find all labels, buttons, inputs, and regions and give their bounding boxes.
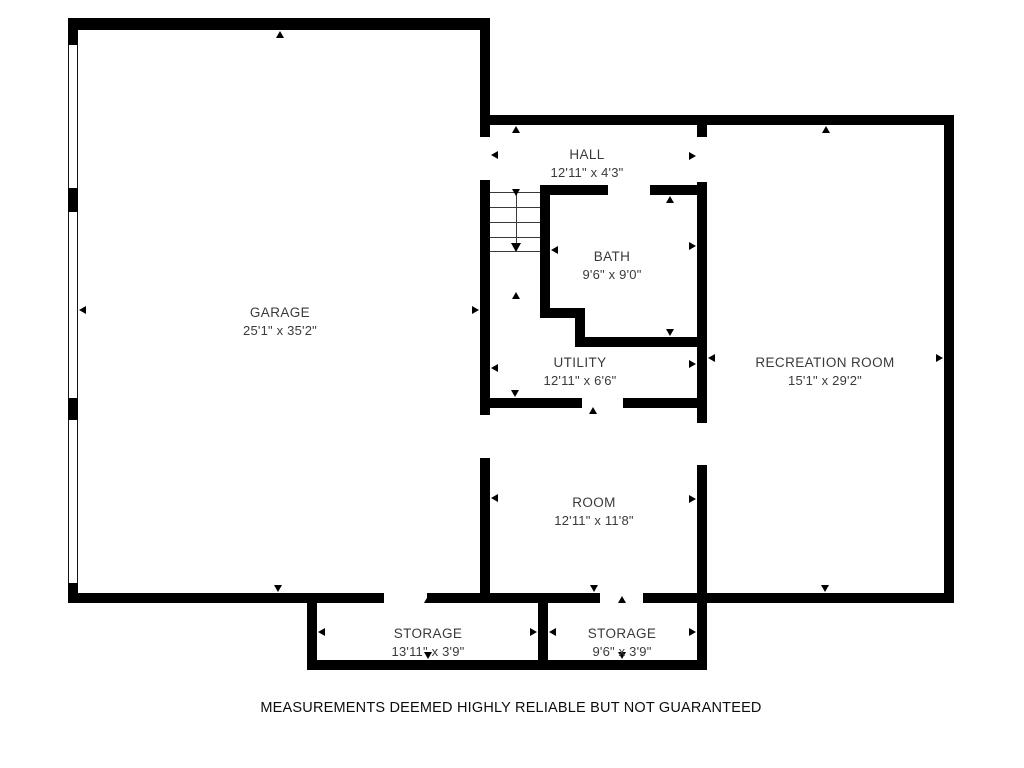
wall-segment [480,180,490,415]
wall-segment [427,593,600,603]
storage-2-dimension-arrow-left [549,628,556,636]
stair-tread [490,207,540,208]
bath-dimension-arrow-left [551,246,558,254]
wall-segment [540,185,550,318]
room-dimensions: 13'11" x 3'9" [392,643,465,661]
utility-dimension-arrow-left [491,364,498,372]
disclaimer-text: MEASUREMENTS DEEMED HIGHLY RELIABLE BUT … [260,700,761,716]
utility-dimension-arrow-up [512,292,520,299]
hall-dimension-arrow-right [689,152,696,160]
floorplan-canvas: MEASUREMENTS DEEMED HIGHLY RELIABLE BUT … [0,0,1024,768]
room-name: UTILITY [544,354,617,372]
storage-2-dimension-arrow-right [689,628,696,636]
stair-tread [490,222,540,223]
room-name: GARAGE [243,304,317,322]
recreation-room-dimension-arrow-up [822,126,830,133]
bath-dimension-arrow-up [666,196,674,203]
garage-dimension-arrow-down [274,585,282,592]
room-label-storage-2: STORAGE9'6" x 3'9" [588,625,657,661]
room-dimensions: 9'6" x 3'9" [588,643,657,661]
utility-dimension-arrow-right [689,360,696,368]
storage-2-dimension-arrow-up [618,596,626,603]
storage-1-dimension-arrow-right [530,628,537,636]
window-opening [68,420,78,583]
room-label-hall: HALL12'11" x 4'3" [551,146,624,182]
wall-segment [480,18,490,137]
recreation-room-dimension-arrow-right [936,354,943,362]
recreation-room-dimension-arrow-down [821,585,829,592]
bath-dimension-arrow-down [666,329,674,336]
wall-segment [697,465,707,603]
wall-segment [643,593,954,603]
room-name: STORAGE [588,625,657,643]
room-name: BATH [582,248,641,266]
bath-dimension-arrow-right [689,242,696,250]
wall-segment [68,18,78,45]
room-dimensions: 12'11" x 6'6" [544,372,617,390]
wall-segment [623,398,707,408]
room-name: STORAGE [392,625,465,643]
room-label-room: ROOM12'11" x 11'8" [554,494,633,530]
room-label-garage: GARAGE25'1" x 35'2" [243,304,317,340]
wall-segment [697,182,707,423]
stair-tread [490,237,540,238]
wall-segment [650,185,707,195]
room-label-bath: BATH9'6" x 9'0" [582,248,641,284]
wall-segment [575,337,707,347]
wall-segment [68,398,78,420]
room-dimension-arrow-up [589,407,597,414]
hall-dimension-arrow-down [512,189,520,196]
wall-segment [68,593,384,603]
hall-dimension-arrow-left [491,151,498,159]
stair-direction-line [516,192,517,244]
room-label-recreation-room: RECREATION ROOM15'1" x 29'2" [755,354,894,390]
garage-dimension-arrow-right [472,306,479,314]
hall-dimension-arrow-up [512,126,520,133]
utility-dimension-arrow-down [511,390,519,397]
wall-segment [307,593,317,670]
wall-segment [490,115,954,125]
room-name: ROOM [554,494,633,512]
storage-1-dimension-arrow-left [318,628,325,636]
wall-segment [307,660,707,670]
wall-segment [944,115,954,603]
room-name: HALL [551,146,624,164]
window-opening [68,212,78,398]
room-dimensions: 12'11" x 4'3" [551,164,624,182]
room-dimension-arrow-right [689,495,696,503]
wall-segment [697,125,707,137]
recreation-room-dimension-arrow-left [708,354,715,362]
garage-dimension-arrow-left [79,306,86,314]
room-dimension-arrow-left [491,494,498,502]
wall-segment [68,188,78,212]
stair-direction-arrow [511,243,521,252]
wall-segment [480,398,582,408]
room-dimensions: 25'1" x 35'2" [243,322,317,340]
storage-1-dimension-arrow-up [424,596,432,603]
room-dimensions: 12'11" x 11'8" [554,512,633,530]
room-name: RECREATION ROOM [755,354,894,372]
room-dimensions: 15'1" x 29'2" [755,372,894,390]
wall-segment [480,458,490,593]
wall-segment [538,593,548,670]
room-dimensions: 9'6" x 9'0" [582,266,641,284]
wall-segment [68,18,490,30]
garage-dimension-arrow-up [276,31,284,38]
room-label-utility: UTILITY12'11" x 6'6" [544,354,617,390]
wall-segment [540,185,608,195]
room-dimension-arrow-down [590,585,598,592]
window-opening [68,45,78,188]
room-label-storage-1: STORAGE13'11" x 3'9" [392,625,465,661]
wall-segment [697,593,707,670]
